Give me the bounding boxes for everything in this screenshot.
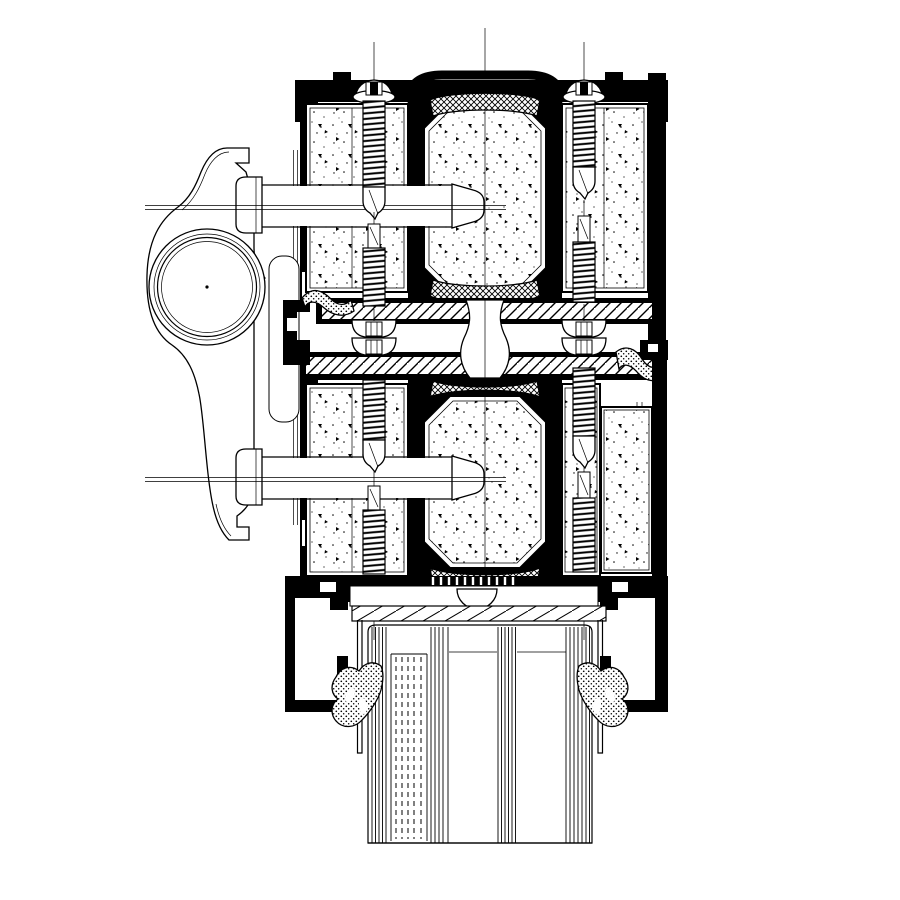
washer-stack (352, 320, 396, 355)
frame-step-right (640, 340, 668, 360)
bracket-boss (149, 229, 265, 345)
laminate-interlayer (396, 657, 421, 839)
glass-pane (566, 627, 590, 843)
frame-member-right (652, 358, 667, 612)
glazing-gasket (577, 663, 628, 727)
bolt-head (236, 177, 262, 233)
castellation-tab (605, 72, 623, 82)
glass-pane (431, 627, 448, 843)
glass-pane (372, 627, 386, 843)
boss-center-mark (205, 285, 208, 288)
connection-bolt (145, 449, 506, 505)
frame-member-inner (546, 96, 562, 302)
washer-stack (562, 320, 606, 355)
drawing-canvas (0, 0, 900, 900)
mid-connection (283, 291, 668, 381)
bolt-head (236, 449, 262, 505)
setting-block (352, 606, 606, 621)
frame-member-inner (546, 378, 562, 586)
castellation-tab (333, 72, 351, 82)
glazing-unit (358, 620, 603, 843)
frame-hook-left (283, 300, 310, 365)
glass-pane (498, 627, 516, 843)
technical-drawing (0, 0, 900, 900)
